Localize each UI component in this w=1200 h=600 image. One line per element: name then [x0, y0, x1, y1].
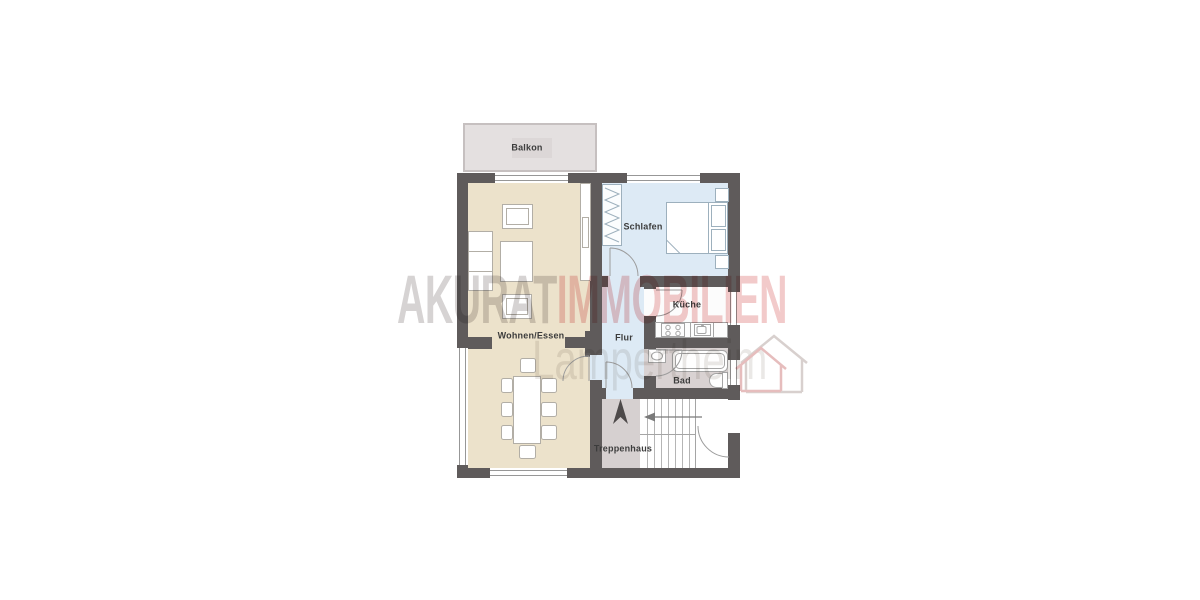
door-opening	[590, 355, 602, 380]
window	[490, 468, 567, 478]
house-logo-icon	[736, 336, 807, 392]
floor-plan-image: Balkon Wohnen/Essen Schlafen Küche Flur …	[0, 0, 1200, 600]
living-dining-label: Wohnen/Essen	[498, 332, 565, 341]
window	[728, 360, 740, 385]
stairwell-label: Treppenhaus	[594, 445, 652, 454]
balcony-label: Balkon	[511, 144, 542, 153]
wall-segment	[590, 183, 602, 468]
wall-stub	[468, 337, 492, 349]
door-opening	[608, 276, 640, 287]
wall-stub	[565, 337, 590, 348]
kitchen-label: Küche	[673, 301, 702, 310]
door-opening	[606, 388, 633, 399]
bathroom-floor	[656, 348, 728, 389]
stairwell-door-opening	[728, 400, 740, 433]
window	[457, 348, 468, 465]
bathroom-label: Bad	[673, 377, 691, 386]
window	[627, 173, 700, 183]
stairwell-stairs-area	[640, 399, 728, 468]
wall-segment	[644, 338, 740, 348]
bedroom-floor	[602, 183, 728, 276]
window	[495, 173, 568, 183]
bedroom-label: Schlafen	[623, 223, 662, 232]
door-opening	[644, 289, 656, 316]
window	[728, 292, 740, 325]
living-dining-floor	[468, 183, 590, 468]
door-opening	[644, 349, 656, 376]
hallway-label: Flur	[615, 334, 633, 343]
stairwell-floor	[602, 399, 640, 468]
kitchen-floor	[656, 287, 728, 338]
